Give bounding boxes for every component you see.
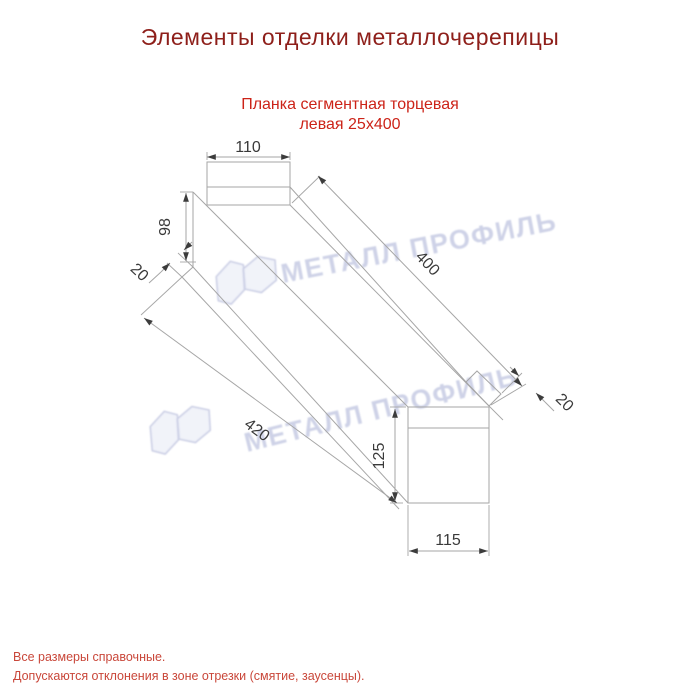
- dim-label-left-height: 98: [157, 218, 174, 236]
- dim-label-top-width: 110: [235, 139, 261, 156]
- dimension-labels: 110 98 20 400 420 125 115 20: [127, 139, 577, 549]
- metall-profil-logo-icon: [145, 402, 216, 456]
- watermark-bottom: МЕТАЛЛ ПРОФИЛЬ: [145, 361, 521, 458]
- technical-drawing: МЕТАЛЛ ПРОФИЛЬ МЕТАЛЛ ПРОФИЛЬ: [0, 0, 700, 700]
- dim-label-right-height: 125: [371, 443, 388, 470]
- dim-label-bottom-width: 115: [435, 532, 461, 549]
- footer-notes: Все размеры справочные. Допускаются откл…: [13, 648, 365, 686]
- dimension-lines: [144, 157, 554, 551]
- watermark-top: МЕТАЛЛ ПРОФИЛЬ: [211, 206, 560, 307]
- footer-note-line1: Все размеры справочные.: [13, 648, 365, 667]
- dim-label-right-hem: 20: [552, 391, 577, 416]
- product-drawing-page: Элементы отделки металлочерепицы Планка …: [0, 0, 700, 700]
- footer-note-line2: Допускаются отклонения в зоне отрезки (с…: [13, 667, 365, 686]
- watermark-text: МЕТАЛЛ ПРОФИЛЬ: [278, 206, 559, 289]
- extension-lines: [141, 152, 526, 556]
- dim-label-left-hem: 20: [127, 260, 152, 285]
- profile-outline: [182, 162, 501, 509]
